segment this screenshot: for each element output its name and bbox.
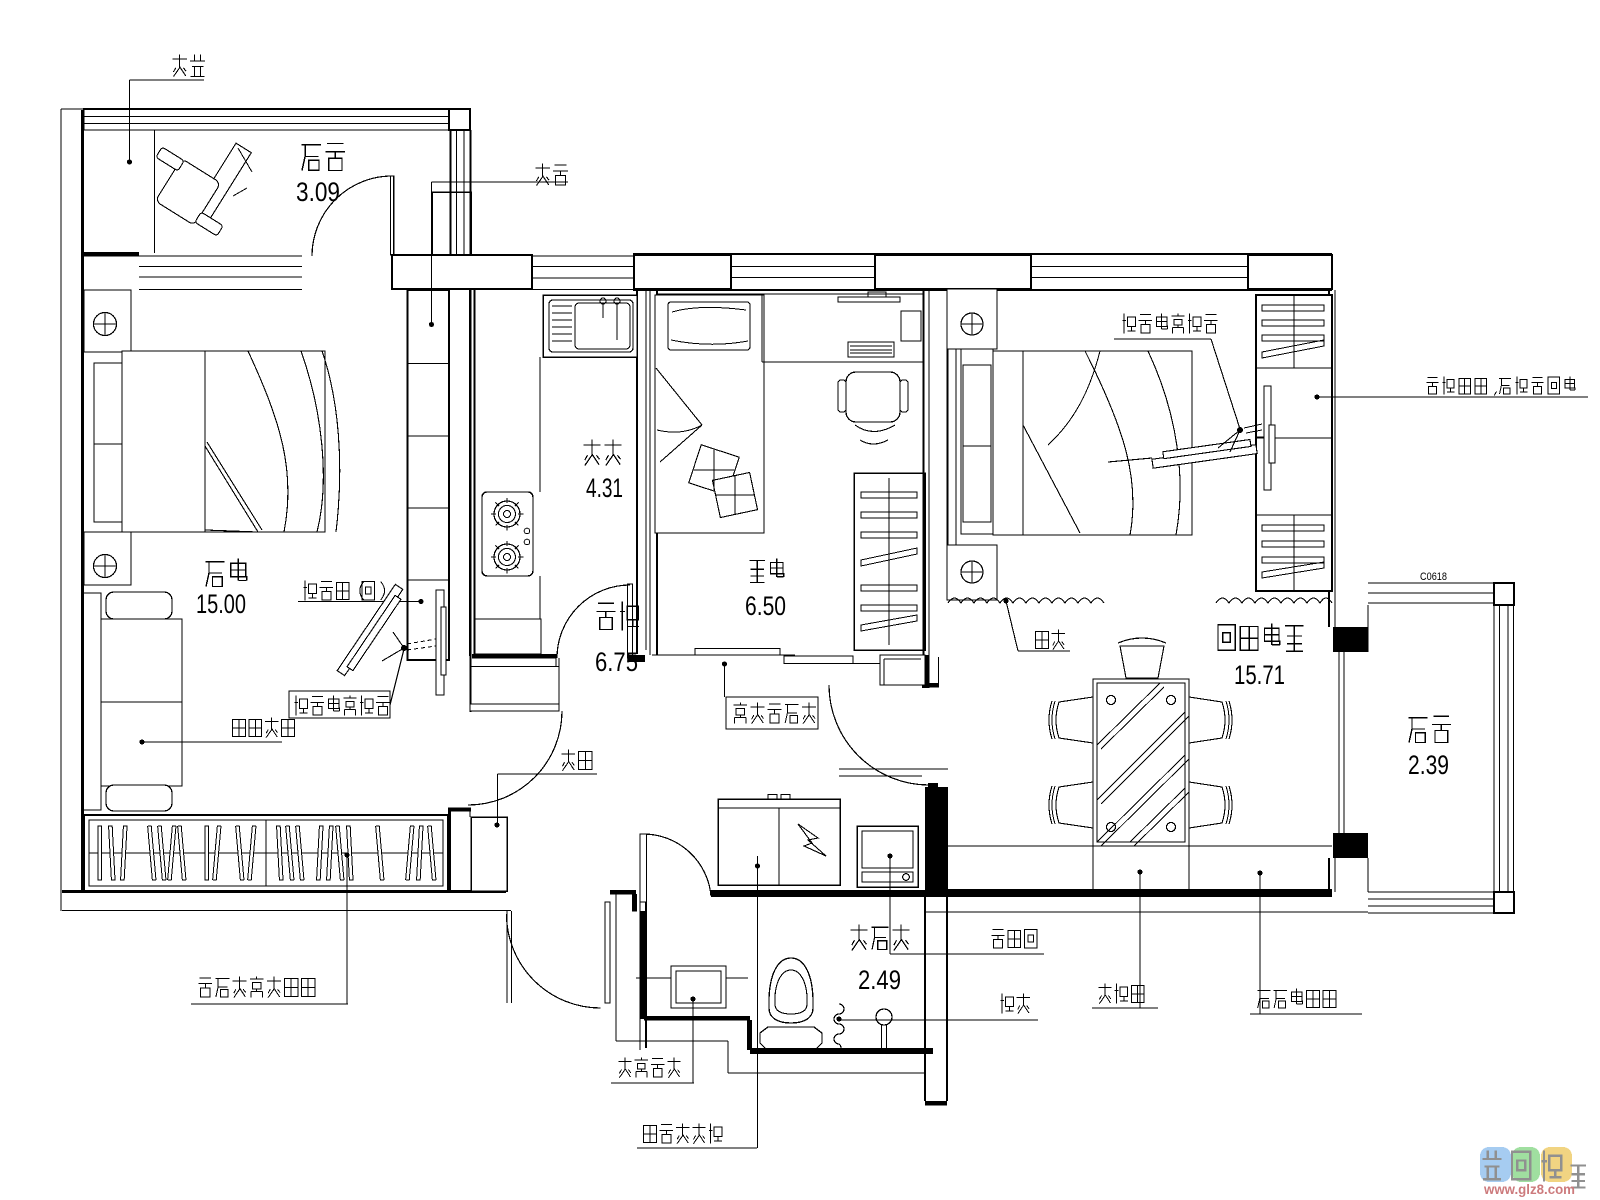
svg-text:2.49: 2.49 xyxy=(858,965,901,995)
svg-text:www.glz8.com: www.glz8.com xyxy=(1483,1181,1575,1197)
svg-text:15.00: 15.00 xyxy=(196,589,246,619)
svg-text:3.09: 3.09 xyxy=(296,177,340,207)
svg-text:15.71: 15.71 xyxy=(1234,660,1285,690)
svg-text:6.75: 6.75 xyxy=(595,647,638,677)
svg-text:4.31: 4.31 xyxy=(586,473,623,503)
svg-text:2.39: 2.39 xyxy=(1408,750,1449,780)
svg-text:6.50: 6.50 xyxy=(745,591,786,621)
svg-text:C0618: C0618 xyxy=(1420,571,1447,583)
